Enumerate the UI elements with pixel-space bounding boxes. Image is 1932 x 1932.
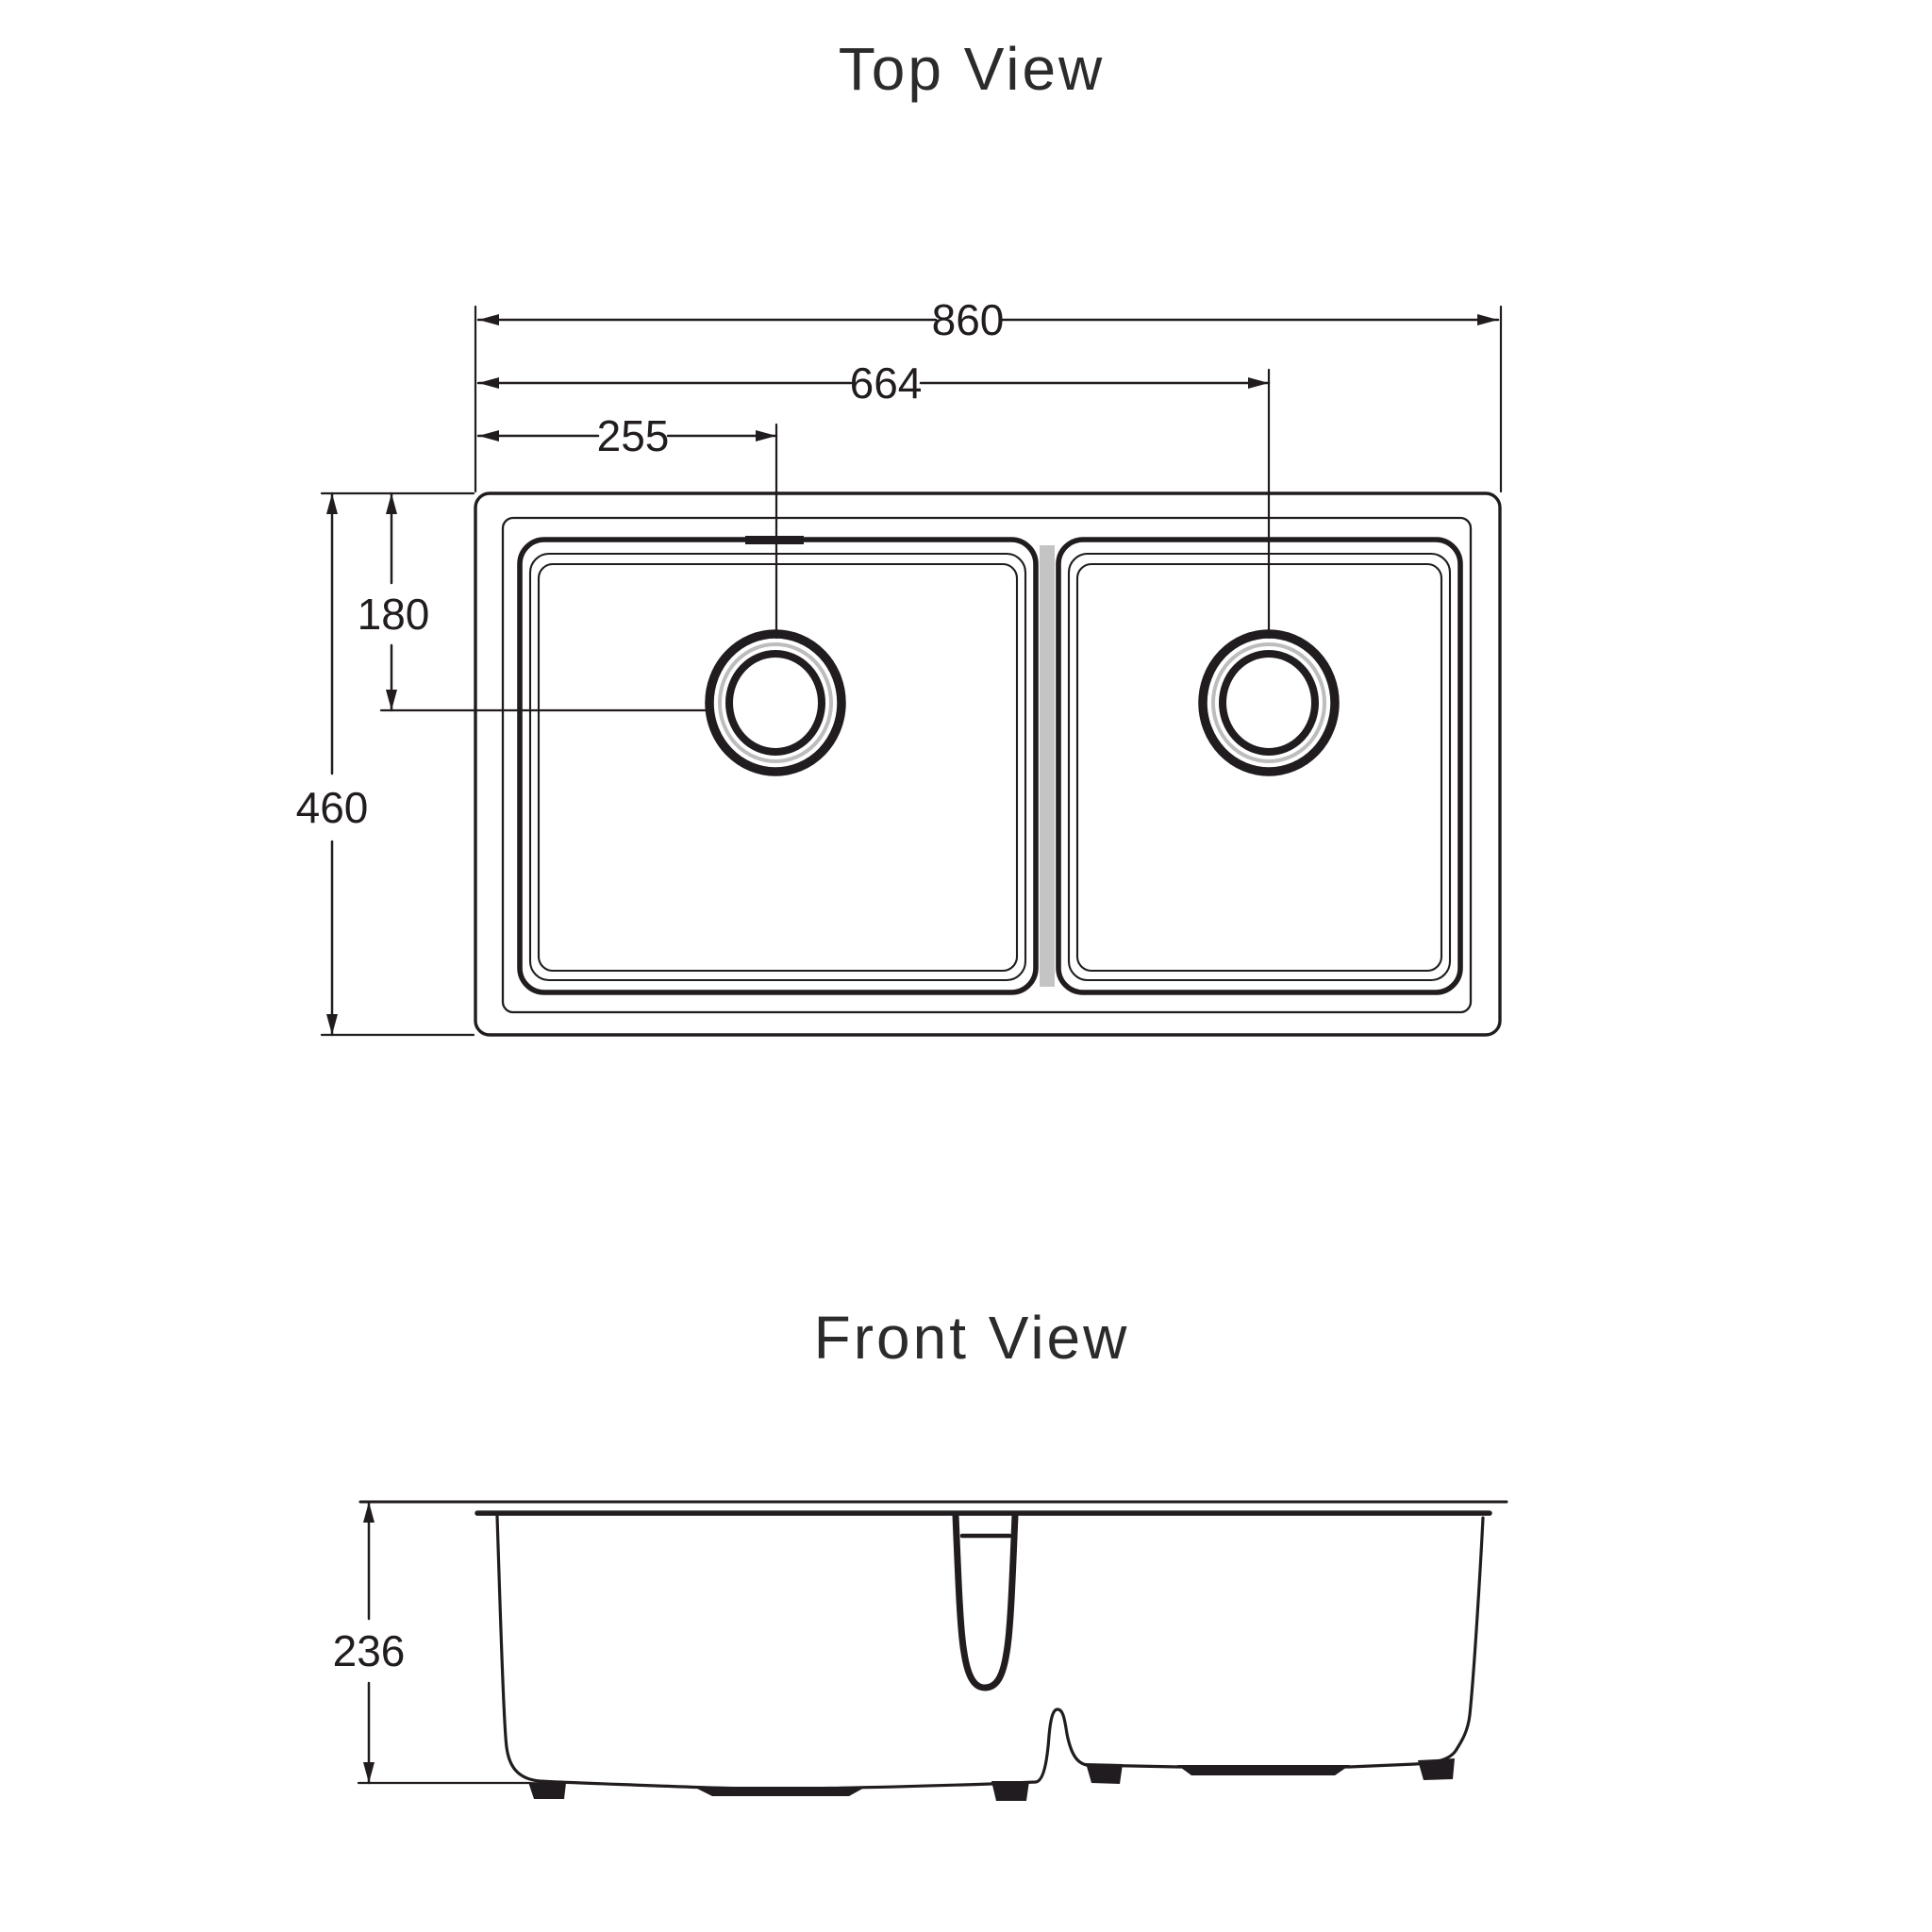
left-bowl-right-foot — [991, 1781, 1029, 1801]
front-view: Front View 236 — [333, 1304, 1507, 1801]
right-bowl-center-pad — [1177, 1765, 1350, 1775]
front-divider-u — [956, 1515, 1015, 1688]
technical-drawing-page: Top View — [0, 0, 1932, 1932]
dim-255-label: 255 — [597, 411, 670, 460]
sink-inner-rim — [503, 518, 1471, 1012]
dim-255: 255 — [478, 411, 776, 460]
dim-860: 860 — [478, 295, 1498, 344]
dim-860-label: 860 — [932, 295, 1005, 344]
right-bowl-outline — [1058, 540, 1460, 992]
dim-180: 180 — [358, 493, 430, 710]
left-bowl-left-foot — [528, 1782, 566, 1799]
overflow-notch — [745, 536, 804, 544]
sink-outer-outline — [475, 493, 1500, 1035]
dim-236-label: 236 — [333, 1626, 406, 1675]
top-view-title: Top View — [839, 35, 1106, 103]
left-bowl-center-pad — [693, 1787, 866, 1796]
left-bowl-mid-bevel — [530, 554, 1025, 980]
dim-180-label: 180 — [358, 590, 430, 639]
sink-drawing-svg: Top View — [0, 0, 1932, 1932]
left-bowl-outline — [520, 540, 1036, 992]
dim-664-label: 664 — [850, 358, 923, 408]
dim-460-label: 460 — [296, 783, 369, 832]
right-bowl-left-foot — [1086, 1763, 1123, 1784]
front-view-title: Front View — [814, 1304, 1130, 1372]
foot-pads — [528, 1758, 1455, 1801]
top-view: Top View — [296, 35, 1501, 1035]
front-sink-profile — [497, 1516, 1483, 1789]
dim-236: 236 — [333, 1502, 406, 1783]
dim-664: 664 — [478, 358, 1269, 408]
bowl-divider — [1040, 545, 1055, 987]
right-drain — [1203, 634, 1335, 772]
right-bowl-right-foot — [1418, 1758, 1455, 1780]
left-drain — [709, 634, 841, 772]
dim-460: 460 — [296, 493, 369, 1035]
